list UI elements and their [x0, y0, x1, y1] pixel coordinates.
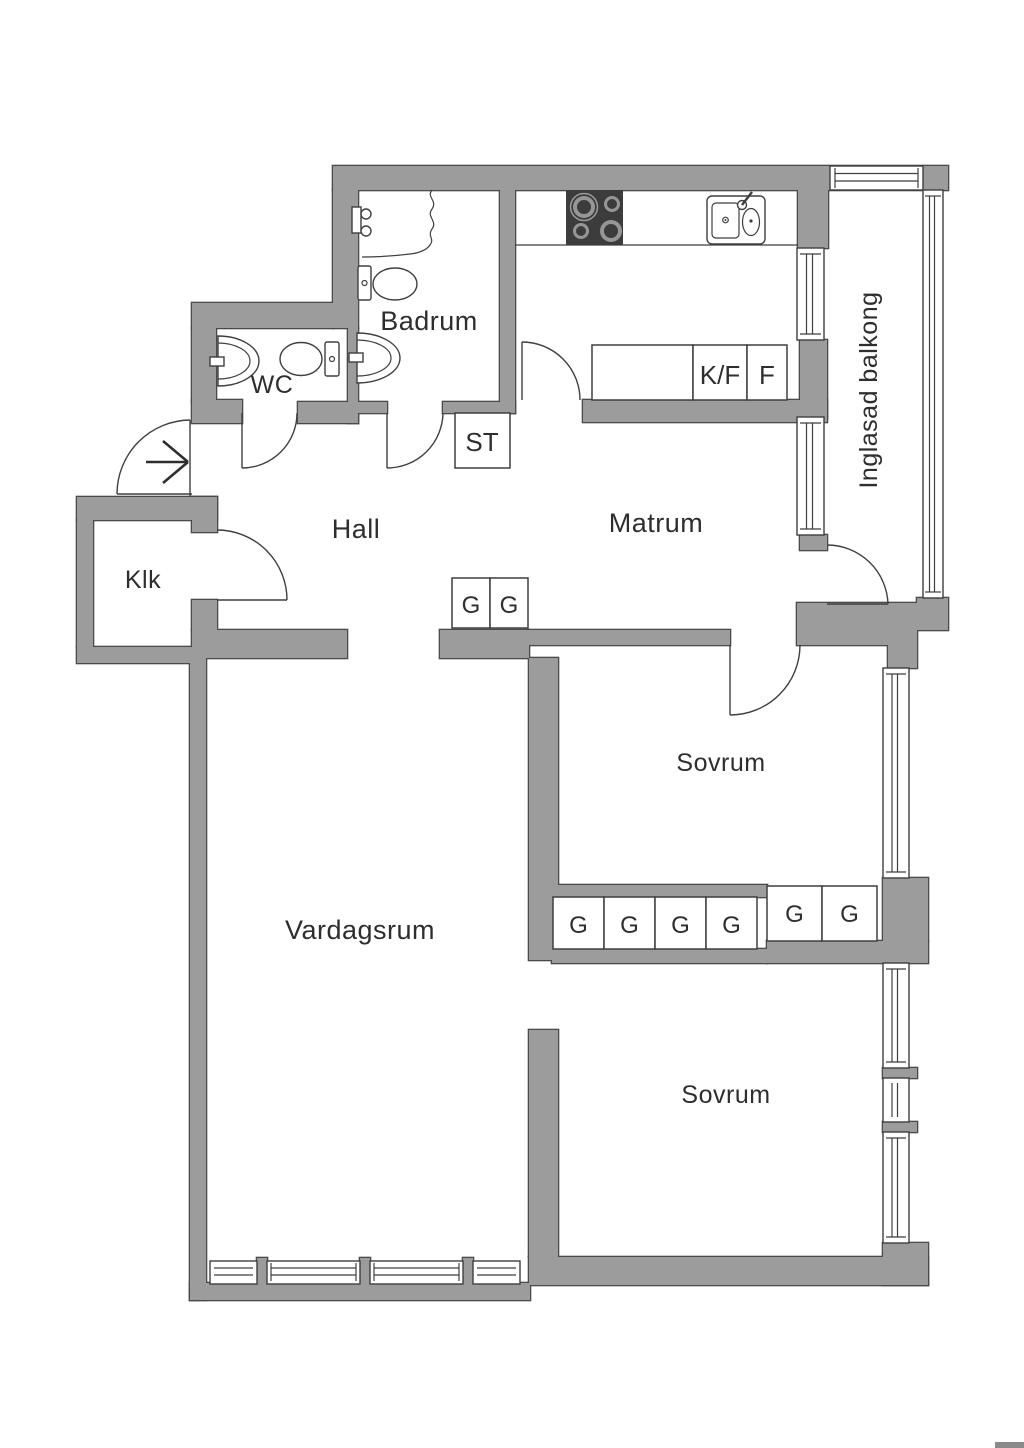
watermark-fragment [995, 1442, 1024, 1448]
vardagsrum-window-1 [210, 1261, 257, 1284]
room-label-sovrum-lower: Sovrum [681, 1081, 770, 1109]
matrum-balcony-window-1 [797, 248, 824, 340]
wardrobe-label-g: G [840, 901, 859, 928]
sovrum-lower-window-3 [883, 1132, 909, 1243]
room-label-hall: Hall [332, 514, 381, 544]
vardagsrum-window-2 [267, 1261, 360, 1284]
room-label-badrum: Badrum [380, 306, 478, 336]
sovrum-upper-window [883, 668, 909, 878]
balcony-top-window [830, 166, 923, 190]
balcony-glazing-east [923, 190, 943, 598]
wardrobe-label-g: G [671, 912, 690, 939]
room-label-klk: Klk [125, 566, 161, 594]
cabinet-label-f: F [759, 360, 775, 390]
cabinet-label-kf: K/F [700, 360, 740, 390]
sovrum-lower-window-2 [883, 1078, 909, 1122]
room-label-vardagsrum: Vardagsrum [285, 915, 435, 945]
wardrobe-label-g: G [569, 912, 588, 939]
double-basin-sink-icon [707, 192, 765, 244]
wardrobe-label-g: G [500, 592, 519, 619]
floor-plan-canvas: Badrum WC ST K/F F Hall Klk Matrum Ingla… [0, 0, 1024, 1448]
matrum-balcony-window-2 [797, 417, 824, 535]
closet-label-st: ST [465, 427, 498, 457]
room-label-matrum: Matrum [609, 508, 704, 538]
sovrum-lower-window-1 [883, 963, 909, 1068]
kitchen-cabinet-row [592, 345, 787, 400]
wardrobe-label-g: G [785, 901, 804, 928]
wardrobe-label-g: G [620, 912, 639, 939]
wardrobe-label-g: G [722, 912, 741, 939]
stove-burners-icon [566, 190, 623, 245]
room-label-sovrum-upper: Sovrum [676, 749, 765, 777]
room-label-balcony: Inglasad balkong [855, 291, 883, 488]
wardrobe-pair-2 [767, 886, 877, 941]
badrum-toilet-icon [358, 266, 417, 300]
vardagsrum-window-3 [370, 1261, 463, 1284]
vardagsrum-window-4 [473, 1261, 520, 1284]
floor-plan-page: { "plan": { "type": "apartment-floor-pla… [0, 0, 1024, 1448]
room-label-wc: WC [251, 371, 294, 399]
wardrobe-label-g: G [462, 592, 481, 619]
